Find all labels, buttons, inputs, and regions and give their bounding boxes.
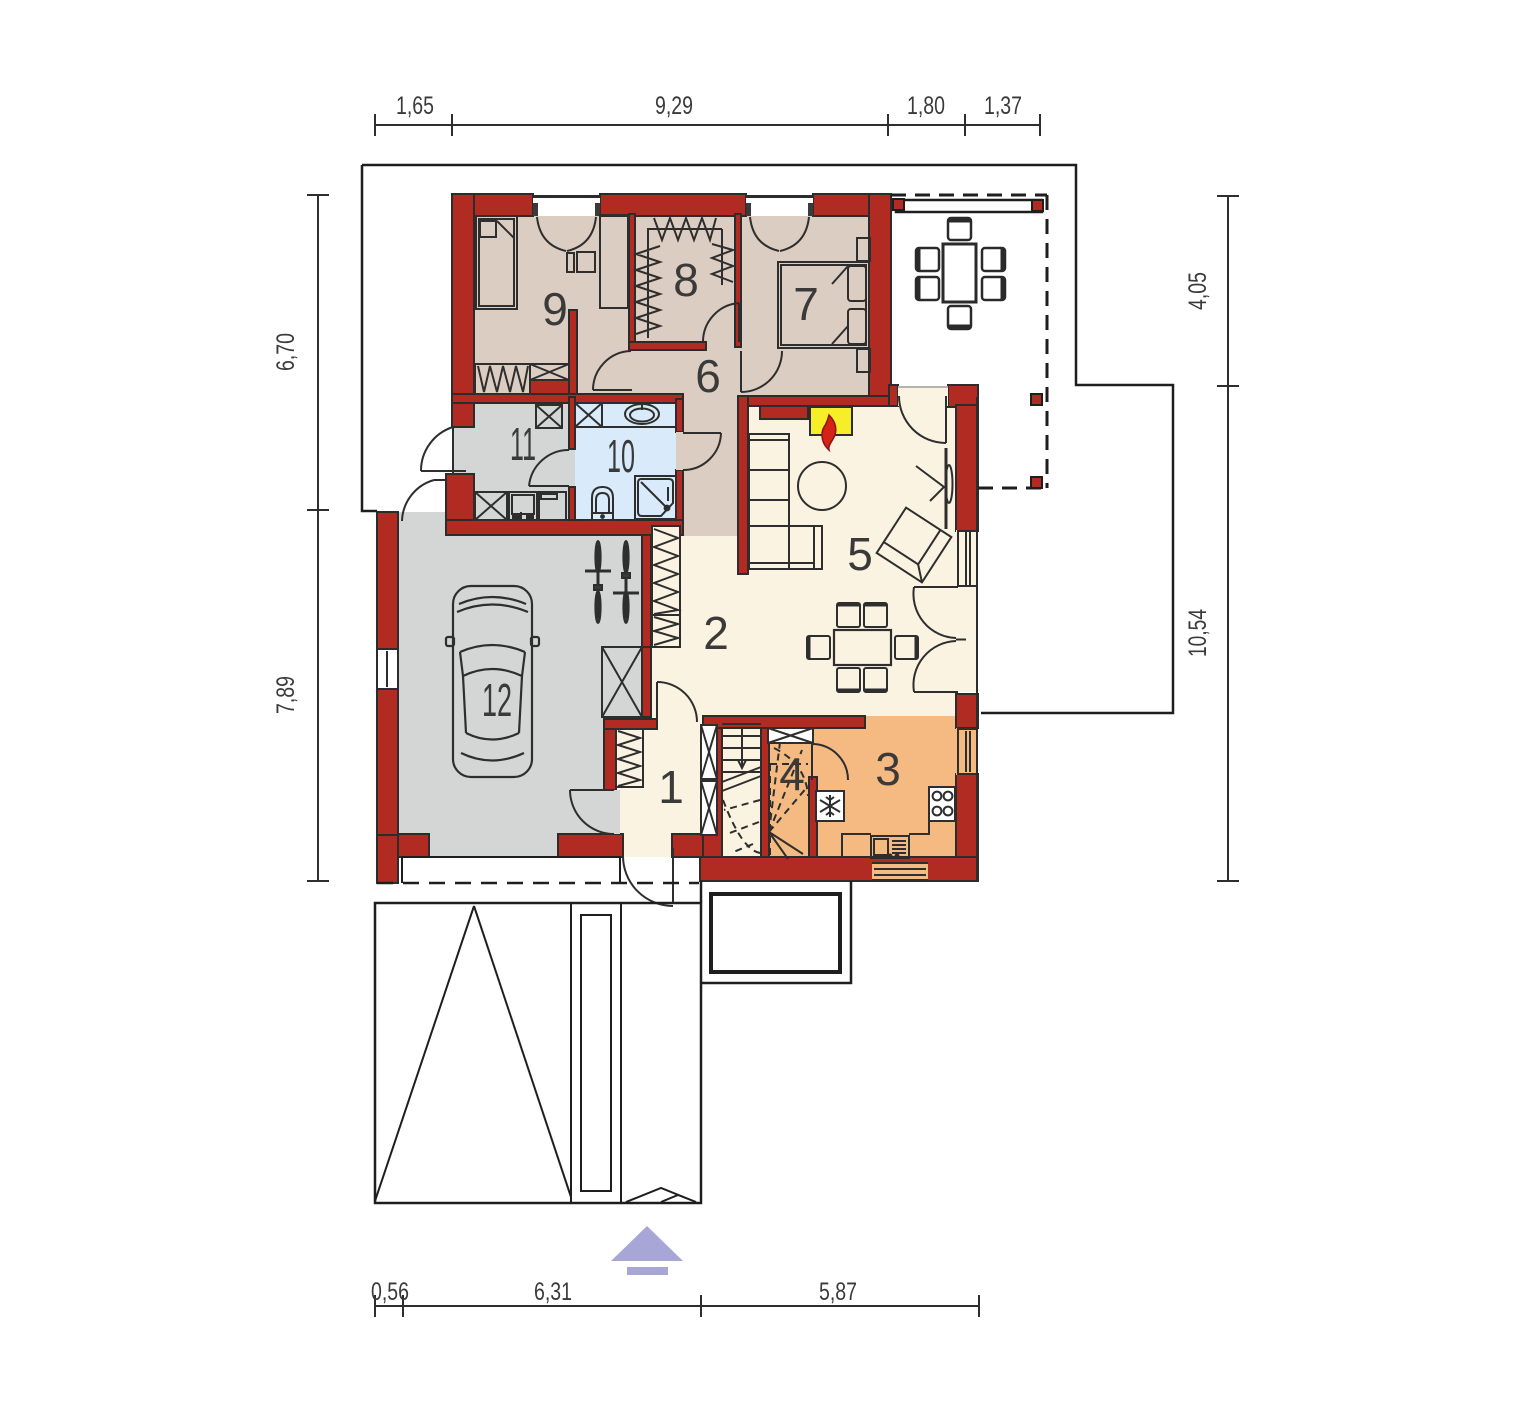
svg-text:6: 6 — [695, 350, 721, 402]
svg-text:1,80: 1,80 — [907, 92, 945, 120]
svg-text:6,70: 6,70 — [272, 333, 300, 371]
svg-text:0,56: 0,56 — [371, 1278, 409, 1306]
svg-text:6,31: 6,31 — [534, 1278, 572, 1306]
svg-text:5: 5 — [847, 528, 873, 580]
svg-text:4,05: 4,05 — [1184, 272, 1212, 310]
svg-text:10: 10 — [607, 430, 635, 482]
svg-text:11: 11 — [510, 418, 536, 470]
svg-text:1,65: 1,65 — [396, 92, 434, 120]
svg-text:12: 12 — [482, 674, 512, 726]
svg-text:4: 4 — [779, 748, 805, 800]
svg-text:1: 1 — [658, 761, 684, 813]
svg-text:7,89: 7,89 — [272, 676, 300, 714]
svg-text:7: 7 — [793, 278, 819, 330]
svg-text:5,87: 5,87 — [819, 1278, 857, 1306]
svg-text:2: 2 — [703, 607, 729, 659]
svg-text:1,37: 1,37 — [984, 92, 1022, 120]
svg-text:8: 8 — [673, 254, 699, 306]
svg-text:9,29: 9,29 — [655, 92, 693, 120]
svg-text:3: 3 — [875, 743, 901, 795]
svg-text:10,54: 10,54 — [1184, 609, 1212, 657]
svg-text:9: 9 — [542, 283, 568, 335]
